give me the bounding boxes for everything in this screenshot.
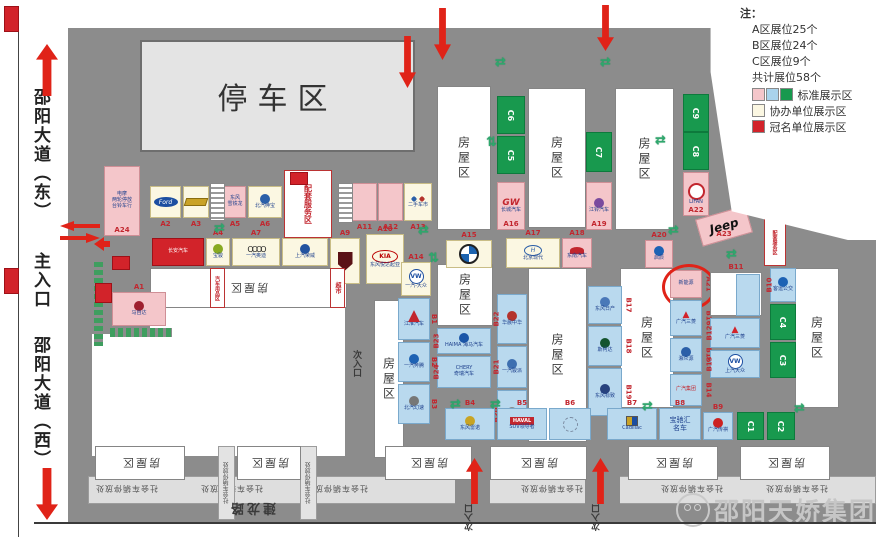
direction-arrow-icon: ⇄ — [655, 134, 666, 147]
booth-text: HAIMA 海马汽车 — [445, 343, 483, 349]
house-block: 房屋区 — [528, 88, 586, 228]
booth-sponsor: 长安汽车 — [152, 238, 204, 266]
booth-label: A18 — [562, 229, 592, 237]
house-block: 房屋区 — [740, 446, 830, 480]
booth-label: C4 — [779, 316, 788, 327]
booth-B1: 江淮汽车 — [398, 298, 430, 340]
direction-arrow-icon: ⇅ — [428, 252, 439, 265]
legend-items: A区展位25个B区展位24个C区展位9个共计展位58个 — [740, 22, 874, 86]
booth-text: 北汽幻速 — [404, 406, 424, 412]
exhibition-map: { "sidebar": { "road_east": "邵阳大道（东）", "… — [0, 0, 876, 548]
booth-text: 一汽奔腾 — [404, 364, 424, 370]
booth-text: Cadillac — [622, 426, 642, 432]
service-booth-label: 汽车用品区 — [214, 276, 221, 301]
booth-B11 — [710, 272, 762, 316]
booth-text: 名车 — [673, 424, 687, 432]
booth-text: 广汽三菱 — [725, 335, 745, 341]
booth-label: B22 — [493, 311, 501, 326]
house-label: 房屋区 — [809, 316, 826, 361]
booth-B13: VW上汽大众 — [710, 350, 760, 378]
booth-label: C3 — [779, 354, 788, 365]
map-marker — [4, 6, 19, 32]
house-block: 房屋区 — [437, 86, 491, 230]
booth-A7: OOOO一汽奥迪 — [232, 238, 280, 266]
entrance-arrow-icon — [466, 458, 483, 504]
service-booth: 配套服务区 — [764, 218, 786, 266]
map-text: 次入口 — [590, 504, 603, 531]
booth-label: B6 — [549, 399, 591, 407]
kia-logo-icon: KIA — [372, 250, 398, 263]
booth-C1: C1 — [737, 412, 764, 440]
vw-logo-icon: VW — [728, 354, 743, 369]
booth-text: 北京现代 — [523, 256, 543, 262]
house-block: 房屋区 — [795, 268, 839, 408]
booth-label: C1 — [746, 420, 755, 431]
booth-label: B10 — [766, 277, 774, 292]
booth-B9: 广汽传祺 — [703, 412, 733, 440]
ford-logo-icon: Ford — [154, 197, 178, 207]
booth-text: 江淮汽车 — [404, 322, 424, 328]
booth-label: C2 — [777, 420, 786, 431]
house-label: 房屋区 — [409, 455, 448, 471]
direction-arrow-icon: ⇄ — [418, 224, 429, 237]
booth-text: 上汽荣威 — [295, 254, 315, 260]
booth-label: B8 — [659, 399, 701, 407]
bmw-logo-icon — [459, 244, 479, 264]
booth-text: 斯柯达 — [597, 348, 612, 354]
hyundai-logo-icon: H — [524, 245, 542, 256]
booth-label: A6 — [248, 220, 282, 228]
booth-label: A23 — [698, 230, 750, 238]
booth-B23: HAIMA 海马汽车 — [437, 328, 491, 354]
service-booth-label: 配套服务区 — [772, 230, 779, 255]
brand-cell-icon — [736, 274, 760, 316]
booth-label: B17 — [625, 297, 633, 312]
booth-B10: 客运公交 — [770, 268, 796, 302]
booth-label: A7 — [232, 229, 280, 237]
direction-arrow-icon: ⇄ — [726, 248, 737, 261]
map-marker — [4, 268, 19, 294]
direction-arrow-icon: ⇄ — [642, 400, 653, 413]
house-block: 房屋区 — [385, 446, 472, 480]
booth-label: B18 — [625, 338, 633, 353]
booth-label: B3 — [430, 399, 438, 409]
house-block: 房屋区 — [150, 268, 347, 308]
booth-text: 长安汽车 — [168, 249, 188, 255]
booth-label: B24 — [433, 364, 441, 379]
booth-label: B19 — [625, 384, 633, 399]
direction-arrow-icon: ⇅ — [486, 136, 497, 149]
booth-text: 宝骏 — [213, 254, 223, 260]
booth-text: 客运公交 — [773, 287, 793, 293]
map-text: 建龙路 — [228, 500, 276, 519]
booth-A10: KIA东风悦达起亚 — [366, 234, 404, 284]
booth-B15: 湘众源 — [670, 338, 702, 372]
house-block: 房屋区 — [628, 446, 718, 480]
booth-B12: ▲广汽三菱 — [710, 318, 760, 348]
legend-swatch-icon — [752, 104, 765, 117]
entrance-arrow-icon — [592, 458, 609, 504]
service-booth: 汽车用品区 — [210, 268, 225, 308]
direction-arrow-icon: ⇄ — [214, 222, 225, 235]
house-block: 房屋区 — [95, 446, 185, 480]
booth-text: 一汽-大众 — [405, 284, 427, 290]
booth-label: A2 — [150, 220, 181, 228]
booth-C7: C7 — [586, 132, 612, 172]
booth-label: C8 — [692, 145, 701, 156]
legend: 注： A区展位25个B区展位24个C区展位9个共计展位58个 标准展示区 协办单… — [740, 6, 874, 136]
map-marker — [95, 283, 112, 303]
booth-label: A22 — [683, 206, 709, 214]
legend-swatch-icon — [780, 88, 793, 101]
booth-text: 广汽集团 — [676, 387, 696, 393]
booth-text: 东风悦达起亚 — [370, 263, 400, 269]
booth-label: C6 — [507, 109, 516, 120]
legend-swatch-icon — [752, 120, 765, 133]
landscaping — [94, 262, 103, 346]
booth-label: A19 — [586, 220, 612, 228]
house-label: 房屋区 — [654, 455, 693, 471]
booth-C3: C3 — [770, 342, 796, 378]
booth-label: C9 — [692, 107, 701, 118]
main-entrance-label: 主入口 — [28, 252, 53, 309]
brand-sketch-icon — [563, 417, 578, 432]
booth-marker — [290, 172, 308, 185]
house-label: 房屋区 — [229, 280, 268, 296]
booth-A5: 东风雪铁龙 — [224, 186, 246, 218]
booth-A2: Ford — [150, 186, 181, 218]
booth-label: B9 — [703, 403, 733, 411]
booth-B17: 东风日产 — [588, 286, 622, 324]
jac-logo-icon — [408, 310, 420, 322]
booth-C6: C6 — [497, 96, 525, 134]
house-label: 房屋区 — [250, 455, 289, 471]
booth-C9: C9 — [683, 94, 709, 132]
booth-B5: HAVALSUV领导者 — [497, 408, 547, 440]
booth-text: 马自达 — [131, 311, 146, 317]
house-label: 房屋区 — [456, 136, 473, 181]
booth-label: B23 — [433, 333, 441, 348]
booth-text: LIFAN — [689, 200, 703, 206]
booth-label: A14 — [401, 253, 431, 261]
booth-A17: H北京现代 — [506, 238, 560, 268]
house-label: 房屋区 — [639, 316, 656, 361]
booth-text: 台铃车行 — [112, 204, 132, 210]
booth-text: 宝驰汇 — [670, 416, 691, 424]
service-booth-label: 配套服务区 — [303, 184, 314, 224]
booth-A1: 马自达 — [112, 292, 166, 326]
legend-swatch-icon — [752, 88, 765, 101]
legend-note: 注： — [740, 6, 874, 22]
booth-B8: 宝驰汇名车 — [659, 408, 701, 440]
legend-swatch-row: 协办单位展示区 — [752, 104, 874, 120]
booth-A8: 上汽荣威 — [282, 238, 328, 266]
entrance-arrow-icon — [36, 468, 58, 520]
entrance-arrow-icon — [434, 8, 451, 60]
lifan-logo-icon — [688, 183, 705, 200]
booth-text: 长城汽车 — [501, 208, 521, 214]
booth-A13: 二手车市 — [404, 183, 432, 221]
open-plaza — [92, 334, 345, 456]
entrance-arrow-icon — [36, 44, 58, 96]
booth-B3: 北汽幻速 — [398, 384, 430, 424]
house-label: 房屋区 — [549, 333, 566, 378]
booth-A3 — [183, 186, 209, 218]
booth-B24: CHERY奇瑞汽车 — [437, 356, 491, 388]
booth-text: 江铃汽车 — [589, 208, 609, 214]
booth-label: A1 — [112, 283, 166, 291]
booth-text: 雪铁龙 — [227, 202, 242, 208]
booth-label: A5 — [224, 220, 246, 228]
booth-A6: 北汽绅宝 — [248, 186, 282, 218]
house-label: 房屋区 — [766, 455, 805, 471]
legend-swatches: 标准展示区 协办单位展示区 冠名单位展示区 — [740, 88, 874, 136]
legend-item: B区展位24个 — [752, 38, 874, 54]
booth-text: 广汽传祺 — [708, 428, 728, 434]
stairs-icon — [210, 183, 225, 221]
legend-swatch-label: 标准展示区 — [794, 89, 853, 102]
booth-text: 湘众源 — [678, 357, 693, 363]
house-label: 房屋区 — [457, 273, 474, 318]
legend-swatch-label: 协办单位展示区 — [766, 105, 847, 118]
entrance-arrow-icon — [399, 36, 416, 88]
booth-C8: C8 — [683, 132, 709, 170]
booth-text: 一汽骏派 — [502, 369, 522, 375]
booth-text: 上汽大众 — [725, 369, 745, 375]
parking-area: 停车区 — [140, 40, 415, 152]
booth-A18: 东南汽车 — [562, 238, 592, 268]
small-arrow-icon — [94, 236, 110, 250]
booth-label: B14 — [705, 382, 713, 397]
booth-A20: 启辰 — [645, 240, 673, 268]
open-plaza — [150, 306, 345, 334]
direction-arrow-icon: ⇄ — [450, 398, 461, 411]
map-bottom-border — [34, 522, 876, 524]
map-text: 次入口 — [350, 350, 363, 377]
booth-text: 广汽三菱 — [676, 320, 696, 326]
landscaping — [110, 328, 172, 337]
map-text: 次入口 — [463, 504, 476, 531]
entrance-arrow-icon — [597, 5, 614, 51]
booth-label: A24 — [104, 226, 140, 234]
booth-text: 东南汽车 — [567, 254, 587, 260]
booth-label: B11 — [710, 263, 762, 271]
house-block: 房屋区 — [437, 264, 493, 326]
booth-C4: C4 — [770, 304, 796, 340]
booth-label: B13 — [706, 356, 714, 371]
direction-arrow-icon: ⇄ — [600, 56, 611, 69]
booth-label: B21 — [493, 359, 501, 374]
booth-B6 — [549, 408, 591, 440]
booth-text: 北汽绅宝 — [255, 204, 275, 210]
chevrolet-logo-icon — [184, 198, 209, 206]
booth-label: C7 — [595, 146, 604, 157]
booth-B18: 斯柯达 — [588, 326, 622, 366]
booth-C2: C2 — [767, 412, 795, 440]
booth-text: 一汽奥迪 — [246, 254, 266, 260]
booth-text: 奇瑞汽车 — [454, 372, 474, 378]
booth-label: A3 — [183, 220, 209, 228]
house-block: 房屋区 — [615, 88, 674, 230]
booth-A11 — [352, 183, 377, 221]
legend-swatch-row: 冠名单位展示区 — [752, 120, 874, 136]
booth-B21: 一汽骏派 — [497, 346, 527, 388]
direction-arrow-icon: ⇄ — [490, 398, 501, 411]
direction-arrow-icon: ⇄ — [794, 402, 805, 415]
booth-text: 东风雷诺 — [460, 426, 480, 432]
legend-swatch-label: 冠名单位展示区 — [766, 121, 847, 134]
service-booth: 超市 — [330, 268, 345, 308]
booth-A14: VW一汽-大众 — [401, 262, 431, 296]
house-label: 房屋区 — [381, 357, 398, 402]
booth-label: C5 — [507, 149, 516, 160]
booth-C5: C5 — [497, 136, 525, 174]
house-label: 房屋区 — [121, 455, 160, 471]
house-label: 房屋区 — [636, 137, 653, 182]
legend-swatch-icon — [766, 88, 779, 101]
legend-item: C区展位9个 — [752, 54, 874, 70]
booth-label: A15 — [446, 231, 492, 239]
house-label: 房屋区 — [519, 455, 558, 471]
booth-B22: 华晨中华 — [497, 294, 527, 344]
booth-text: 华晨中华 — [502, 321, 522, 327]
booth-label: A17 — [506, 229, 560, 237]
public-parking-label: 社会车辆停放处 — [95, 483, 158, 494]
legend-item: A区展位25个 — [752, 22, 874, 38]
direction-arrow-icon: ⇄ — [495, 56, 506, 69]
booth-A4: 宝骏 — [206, 238, 230, 266]
service-booth-label: 超市 — [333, 282, 342, 294]
house-block: 房屋区 — [237, 446, 301, 480]
house-label: 房屋区 — [549, 136, 566, 181]
public-parking-strip-v: 社会车辆停放处 — [300, 446, 317, 520]
booth-text: SUV领导者 — [509, 425, 534, 431]
legend-swatch-row: 标准展示区 — [752, 88, 874, 104]
booth-label: A10 — [366, 225, 404, 233]
booth-A15 — [446, 240, 492, 268]
booth-text: 东风日产 — [595, 307, 615, 313]
stairs-icon — [338, 183, 353, 223]
direction-arrow-icon: ⇄ — [668, 224, 679, 237]
booth-label: A16 — [497, 220, 525, 228]
booth-label: B5 — [497, 399, 547, 407]
public-parking-label: 社会车辆停放处 — [520, 483, 583, 494]
booth-A12 — [378, 183, 403, 221]
booth-label: B1 — [430, 314, 438, 324]
vw-logo-icon: VW — [409, 269, 424, 284]
road-label-east: 邵阳大道（东） — [28, 88, 53, 221]
map-marker — [112, 256, 130, 270]
road-label-west: 邵阳大道（西） — [28, 336, 53, 469]
booth-text: 启辰 — [654, 256, 664, 262]
booth-label: A9 — [330, 229, 360, 237]
house-block: 房屋区 — [490, 446, 587, 480]
booth-B16: ▲广汽三菱 — [670, 300, 702, 336]
legend-item: 共计展位58个 — [752, 70, 874, 86]
booth-label: B12 — [706, 325, 714, 340]
booth-B2: 一汽奔腾 — [398, 342, 430, 382]
booth-text: 二手车市 — [408, 203, 428, 209]
booth-B4: 东风雷诺 — [445, 408, 495, 440]
